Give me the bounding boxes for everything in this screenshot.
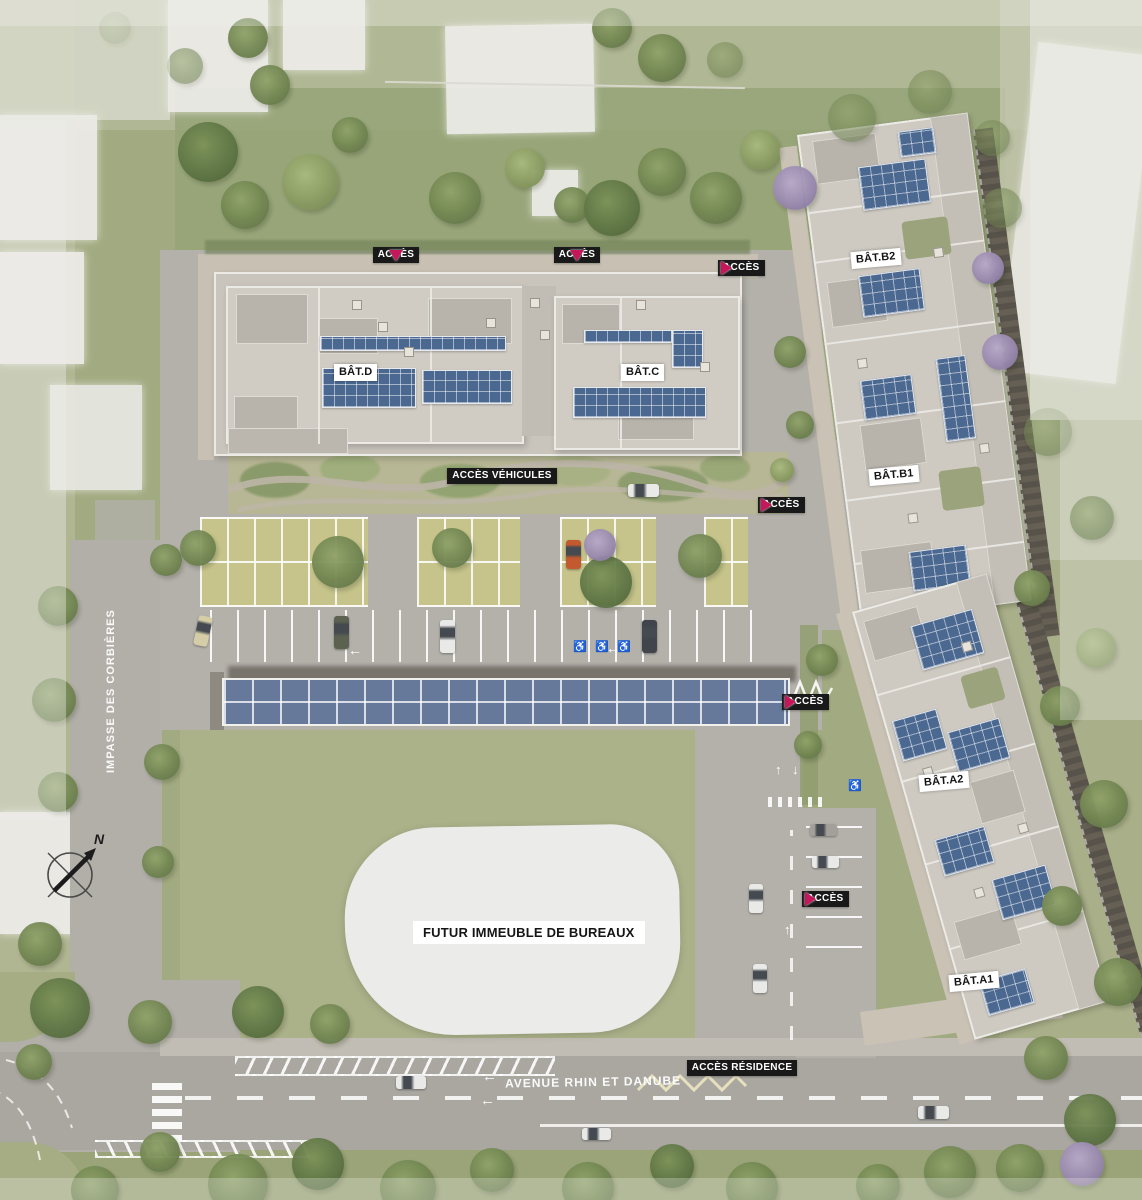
tree — [38, 586, 78, 626]
solar-array — [910, 609, 984, 671]
compass: N — [34, 830, 112, 910]
tree — [638, 34, 686, 82]
tree — [432, 528, 472, 568]
solar-array — [947, 718, 1010, 773]
tree — [774, 336, 806, 368]
car — [628, 484, 659, 497]
tree — [996, 1144, 1044, 1192]
future-office-label-text: FUTUR IMMEUBLE DE BUREAUX — [423, 925, 635, 940]
roof-section — [859, 417, 926, 471]
tree — [180, 530, 216, 566]
tree — [142, 846, 174, 878]
tree — [310, 1004, 350, 1044]
roof-joint — [318, 286, 320, 444]
driveway-crosswalk — [768, 797, 826, 807]
tree — [678, 534, 722, 578]
car — [440, 620, 455, 653]
car — [918, 1106, 949, 1119]
solar-carport-canopy — [222, 678, 790, 726]
tree — [650, 1144, 694, 1188]
neighbor-building — [445, 24, 595, 135]
tree — [1024, 1036, 1068, 1080]
tree — [282, 154, 338, 210]
accessible-symbol: ♿ — [573, 640, 587, 653]
solar-array — [858, 158, 931, 210]
solar-array — [858, 268, 925, 318]
neighbor-building — [283, 0, 365, 70]
compass-north-label: N — [94, 831, 105, 847]
roof-vent — [979, 443, 990, 454]
lane-arrow: ← — [348, 642, 362, 658]
access-arrow-right-icon — [721, 261, 732, 275]
car — [753, 964, 767, 993]
accessible-symbol: ♿ — [848, 779, 862, 792]
strip-courtyard — [938, 466, 985, 511]
tree — [128, 1000, 172, 1044]
tree — [828, 94, 876, 142]
roof-vent — [700, 362, 710, 372]
roof-vent — [404, 347, 414, 357]
label-bat-d: BÂT.D — [334, 364, 377, 381]
avenue-name: AVENUE RHIN ET DANUBE — [505, 1074, 681, 1089]
lane-arrow: ↑ — [775, 762, 782, 777]
impasse-road-stub — [95, 500, 155, 545]
car — [582, 1128, 611, 1140]
lane-arrow: ↑ — [784, 922, 791, 937]
tree — [773, 166, 817, 210]
neighbor-building — [0, 115, 97, 240]
tree — [250, 65, 290, 105]
roof-vent — [530, 298, 540, 308]
tree — [1064, 1094, 1116, 1146]
tree — [167, 48, 203, 84]
tree — [38, 772, 78, 812]
roof-vent — [378, 322, 388, 332]
car — [749, 884, 763, 913]
site-plan: ← ← ↑ ↓ ↑ ♿ ♿ ♿ ♿ ← ← — [0, 0, 1142, 1200]
center-dashes — [185, 1096, 1142, 1100]
avenue-sidewalk — [160, 1038, 1142, 1056]
lane-arrow: ↓ — [792, 762, 799, 777]
tree — [228, 18, 268, 58]
car — [334, 616, 349, 649]
roof-vent — [636, 300, 646, 310]
roof-terrace — [228, 428, 348, 454]
access-vehicles-label: ACCÈS VÉHICULES — [447, 468, 557, 484]
tree — [580, 556, 632, 608]
tree — [924, 1146, 976, 1198]
roof-vent — [486, 318, 496, 328]
tree — [806, 644, 838, 676]
tree — [1024, 408, 1072, 456]
impasse-name: IMPASSE DES CORBIÈRES — [106, 623, 122, 773]
tree — [312, 536, 364, 588]
tree — [1094, 958, 1142, 1006]
tree — [592, 8, 632, 48]
car — [812, 856, 839, 868]
tree — [794, 731, 822, 759]
solar-array — [860, 374, 917, 420]
neighbor-building — [0, 252, 84, 364]
lane-arrow: ← — [606, 640, 620, 656]
roof-joint — [430, 286, 432, 444]
car — [566, 540, 581, 569]
tree — [972, 252, 1004, 284]
hatch-median — [95, 1140, 310, 1158]
tree — [232, 986, 284, 1038]
tree — [429, 172, 481, 224]
lane-line — [540, 1124, 1142, 1127]
solar-array — [672, 330, 703, 368]
roof-section — [236, 294, 308, 344]
access-residence-label: ACCÈS RÉSIDENCE — [687, 1060, 798, 1076]
tree — [690, 172, 742, 224]
tree — [144, 744, 180, 780]
lane-arrow: ← — [480, 1092, 495, 1109]
green-parking-block — [417, 517, 520, 607]
tree — [30, 978, 90, 1038]
neighbor-building — [50, 385, 142, 490]
east-lot-stalls — [806, 818, 862, 948]
solar-array — [897, 127, 936, 157]
tree — [1042, 886, 1082, 926]
tree — [150, 544, 182, 576]
strip-courtyard — [901, 216, 952, 260]
tree — [707, 42, 743, 78]
hatch-median — [235, 1056, 555, 1076]
roof-vent — [540, 330, 550, 340]
tree — [770, 458, 794, 482]
tree — [786, 411, 814, 439]
solar-array — [934, 826, 994, 877]
solar-array — [573, 387, 706, 418]
access-arrow-down-icon — [570, 250, 584, 261]
access-arrow-right-icon — [761, 498, 772, 512]
roof-vent — [352, 300, 362, 310]
tree — [856, 1164, 900, 1200]
roof-vent — [933, 247, 944, 258]
parking-stall-lines — [210, 610, 765, 662]
tree — [292, 1138, 344, 1190]
tree — [1076, 628, 1116, 668]
access-arrow-right-icon — [805, 892, 816, 906]
tree — [470, 1148, 514, 1192]
tree — [908, 70, 952, 114]
tree — [1060, 1142, 1104, 1186]
tree — [584, 180, 640, 236]
tree — [982, 188, 1022, 228]
tree — [18, 922, 62, 966]
lane-arrow: ← — [482, 1068, 497, 1085]
tree — [740, 130, 780, 170]
tree — [974, 120, 1010, 156]
future-office-label: FUTUR IMMEUBLE DE BUREAUX — [413, 921, 645, 944]
access-arrow-right-icon — [785, 695, 796, 709]
tree — [1080, 780, 1128, 828]
car — [642, 620, 657, 653]
west-footpath — [198, 254, 214, 460]
solar-array — [422, 370, 512, 404]
tree — [1014, 570, 1050, 606]
label-bat-c: BÂT.C — [621, 364, 664, 381]
tree — [505, 148, 545, 188]
car — [396, 1076, 426, 1089]
tree — [1040, 686, 1080, 726]
tree — [140, 1132, 180, 1172]
tree — [32, 678, 76, 722]
dc-gap — [522, 286, 556, 436]
car — [810, 824, 837, 836]
tree — [982, 334, 1018, 370]
roof-vent — [973, 887, 985, 899]
roof-vent — [907, 513, 918, 524]
tree — [178, 122, 238, 182]
access-arrow-down-icon — [389, 250, 403, 261]
solar-array — [892, 709, 948, 762]
tree — [1070, 496, 1114, 540]
tree — [16, 1044, 52, 1080]
solar-array — [584, 330, 672, 343]
roof-vent — [857, 358, 868, 369]
tree — [638, 148, 686, 196]
tree — [584, 529, 616, 561]
north-hedge — [205, 240, 750, 254]
tree — [221, 181, 269, 229]
tree — [99, 12, 131, 44]
tree — [332, 117, 368, 153]
